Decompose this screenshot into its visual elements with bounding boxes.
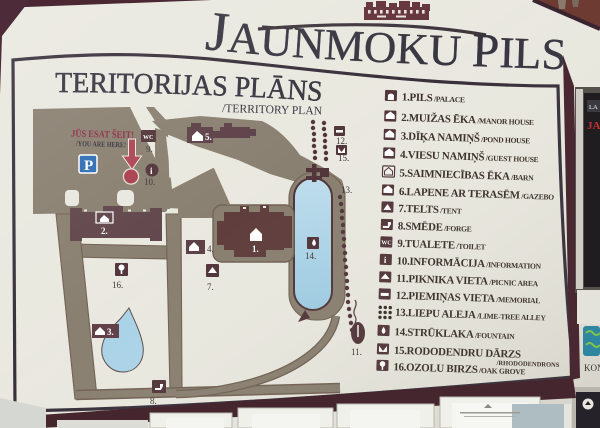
svg-text:JA: JA (587, 120, 600, 132)
svg-text:KON: KON (584, 363, 600, 373)
svg-text:LA: LA (589, 104, 598, 111)
